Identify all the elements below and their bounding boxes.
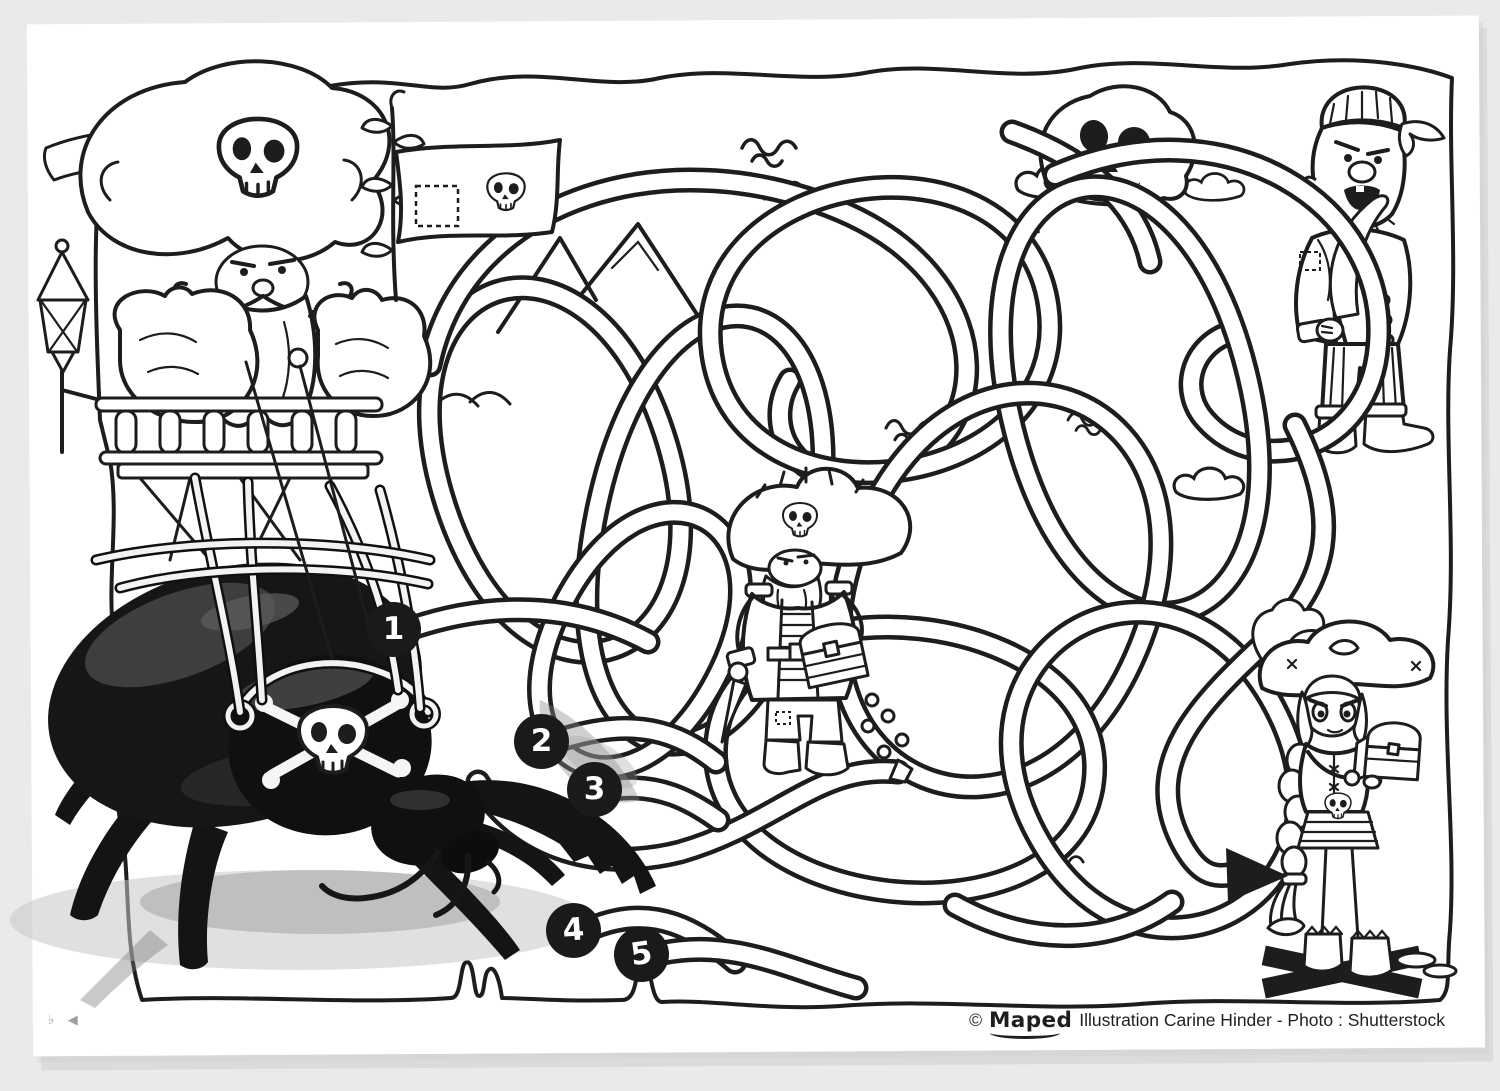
- maped-logo-swoosh-icon: [990, 1027, 1060, 1039]
- credit-text: Illustration Carine Hinder - Photo : Shu…: [1079, 1010, 1445, 1031]
- copyright-symbol: ©: [969, 1010, 982, 1031]
- maze-start-marker-3: 3: [567, 762, 622, 817]
- maze-start-marker-2: 2: [514, 714, 569, 769]
- coin-icon: [1397, 953, 1435, 967]
- maze-start-marker-1: 1: [366, 602, 421, 657]
- maped-logo: Maped: [989, 1008, 1072, 1033]
- page-background: 1 2 3 4 5 © Maped Illustration Carine Hi…: [0, 0, 1500, 1091]
- corner-print-marks: ♭ ◀: [48, 1012, 83, 1028]
- coin-icon: [1424, 965, 1456, 977]
- maze-illustration: [0, 0, 1500, 1091]
- credit-line: © Maped Illustration Carine Hinder - Pho…: [969, 1008, 1445, 1033]
